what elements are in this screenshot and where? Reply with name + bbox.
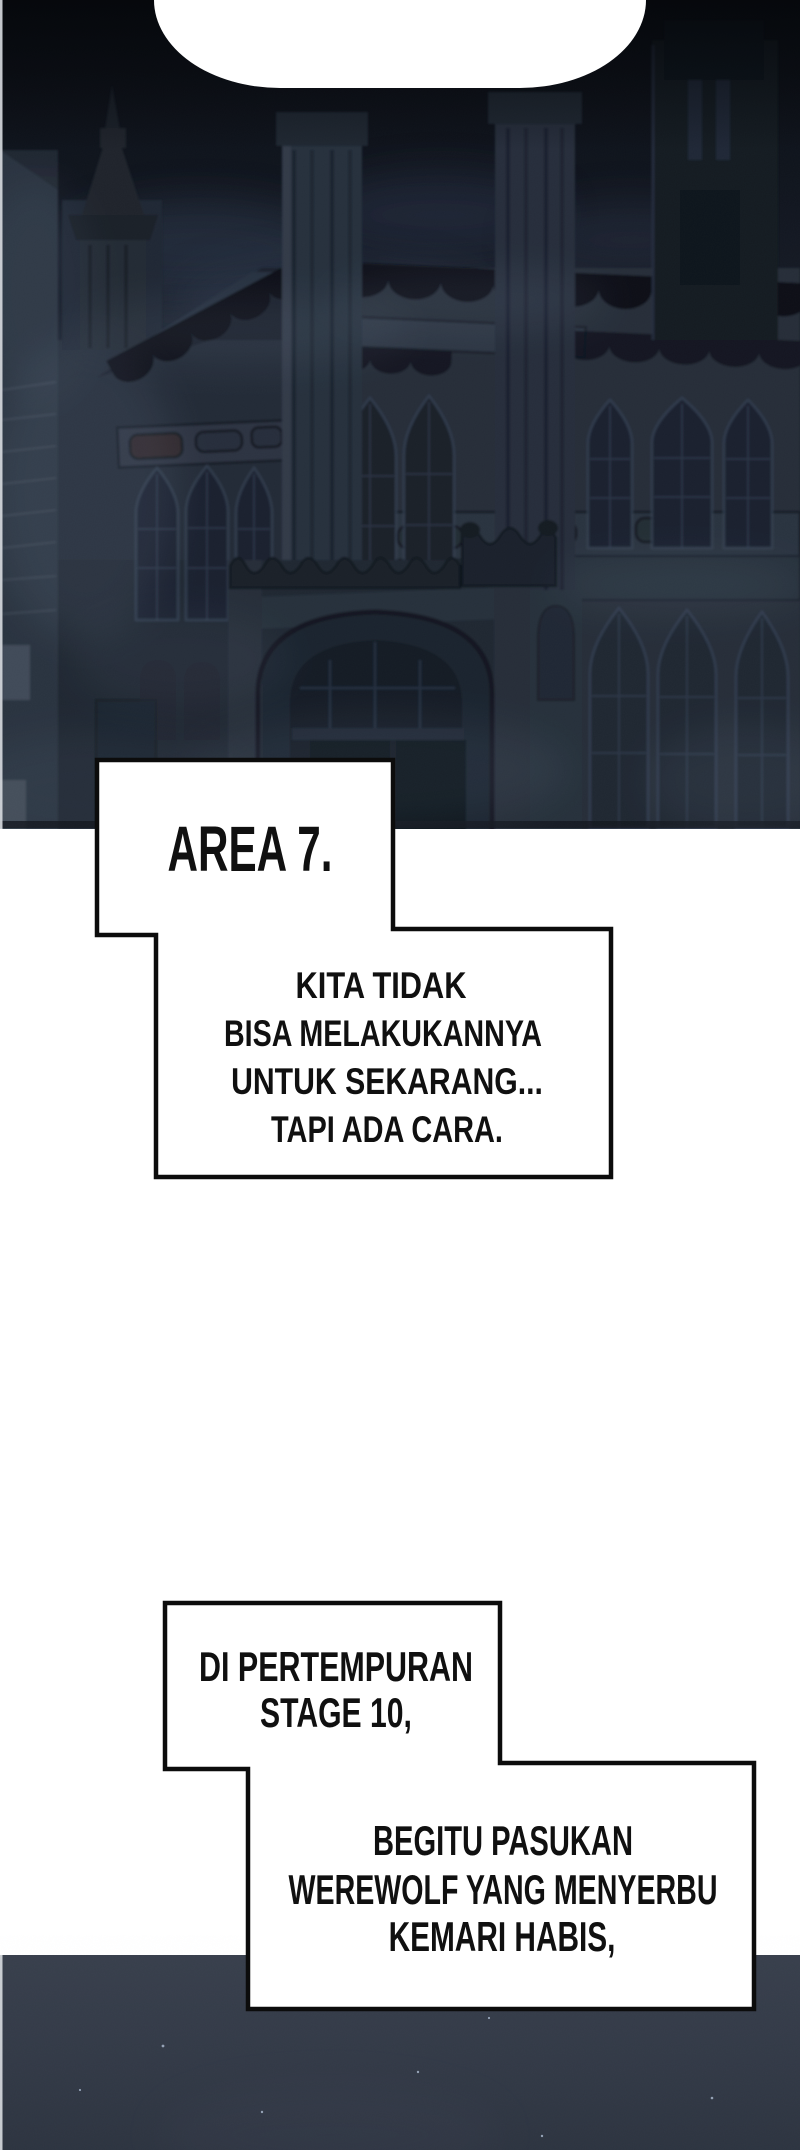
svg-text:AREA 7.: AREA 7. [167,814,332,885]
svg-text:KITA TIDAK: KITA TIDAK [296,965,467,1006]
svg-text:BISA MELAKUKANNYA: BISA MELAKUKANNYA [224,1014,542,1055]
svg-text:STAGE 10,: STAGE 10, [260,1689,412,1736]
svg-text:WEREWOLF YANG MENYERBU: WEREWOLF YANG MENYERBU [289,1865,718,1913]
svg-text:DI PERTEMPURAN: DI PERTEMPURAN [199,1643,473,1690]
svg-text:TAPI ADA CARA.: TAPI ADA CARA. [271,1110,503,1151]
svg-text:BEGITU PASUKAN: BEGITU PASUKAN [373,1817,633,1865]
svg-text:UNTUK SEKARANG...: UNTUK SEKARANG... [231,1061,543,1103]
svg-text:KEMARI HABIS,: KEMARI HABIS, [389,1913,616,1960]
